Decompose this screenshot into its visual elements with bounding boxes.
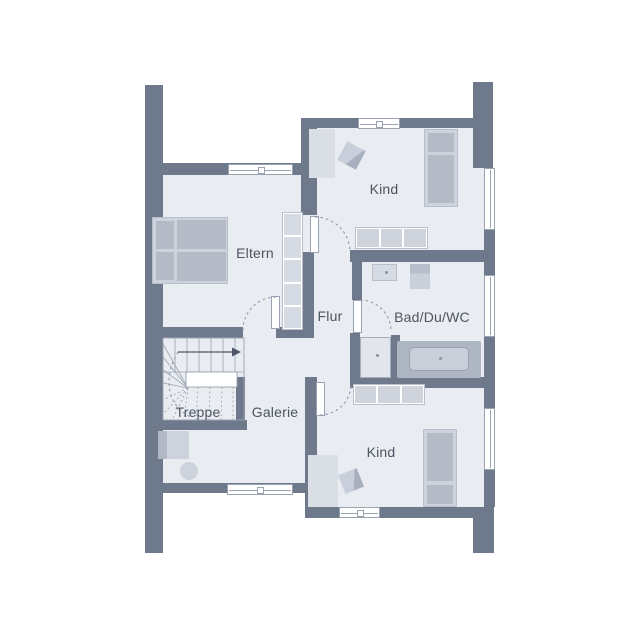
wall-flur-bad: [352, 262, 362, 300]
toilet: [410, 264, 430, 289]
wall-eltern-flur: [303, 252, 314, 338]
bathtub: [397, 341, 481, 378]
window-right-bad: [484, 275, 495, 337]
window-kind-bottom: [339, 507, 380, 518]
room-label-treppe: Treppe: [175, 404, 220, 420]
armchair-back: [158, 431, 167, 459]
room-label-galerie: Galerie: [252, 404, 299, 420]
armchair-seat: [167, 431, 189, 459]
room-label-kind-bottom: Kind: [367, 444, 396, 460]
room-label-kind-top: Kind: [370, 181, 399, 197]
washbasin: [372, 264, 397, 281]
floor-plan: Eltern Kind Flur Bad/Du/WC Treppe Galeri…: [0, 0, 636, 636]
room-label-flur: Flur: [318, 308, 343, 324]
armchair: [158, 431, 189, 459]
window-kind-top: [358, 118, 400, 129]
door-eltern: [271, 296, 280, 329]
room-label-bad: Bad/Du/WC: [394, 309, 470, 325]
bed-pillow: [427, 485, 453, 504]
door-bad: [353, 300, 362, 333]
wall-bad-north: [350, 250, 484, 262]
exterior-notch-top-left: [163, 128, 301, 163]
wall-stair-right: [236, 377, 245, 420]
wall-shower-left: [350, 333, 360, 379]
shower: [360, 337, 391, 378]
bed-mattress: [428, 155, 454, 203]
bed-pillow: [156, 221, 174, 249]
wall-stair-bottom: [145, 420, 247, 430]
single-bed: [424, 129, 458, 207]
room-label-eltern: Eltern: [236, 245, 274, 261]
wall-right-stub-top: [473, 82, 493, 168]
wall-kind-bottom-bottom: [305, 507, 473, 518]
window-galerie-bottom: [227, 484, 293, 495]
wall-eltern-bottom-left: [145, 327, 243, 338]
single-bed: [423, 429, 457, 507]
wall-right-stub-bottom: [473, 507, 494, 553]
window-right-kind-bottom: [484, 408, 495, 470]
dresser: [355, 227, 428, 249]
desk: [308, 455, 338, 507]
desk: [309, 129, 335, 178]
bathtub-basin: [409, 347, 469, 371]
wardrobe: [282, 212, 303, 330]
bed-pillow: [156, 252, 174, 280]
exterior-notch-bottom-left: [163, 493, 305, 507]
door-kind-top: [310, 216, 319, 253]
bed-mattress: [177, 252, 226, 281]
window-right-kind-top: [484, 168, 495, 230]
window-eltern-top: [228, 164, 293, 175]
double-bed: [152, 217, 228, 284]
bed-mattress: [427, 433, 453, 481]
bed-pillow: [428, 133, 454, 152]
side-table: [180, 462, 198, 480]
door-kind-bottom: [316, 382, 325, 416]
bed-mattress: [177, 220, 226, 249]
dresser: [353, 384, 425, 405]
